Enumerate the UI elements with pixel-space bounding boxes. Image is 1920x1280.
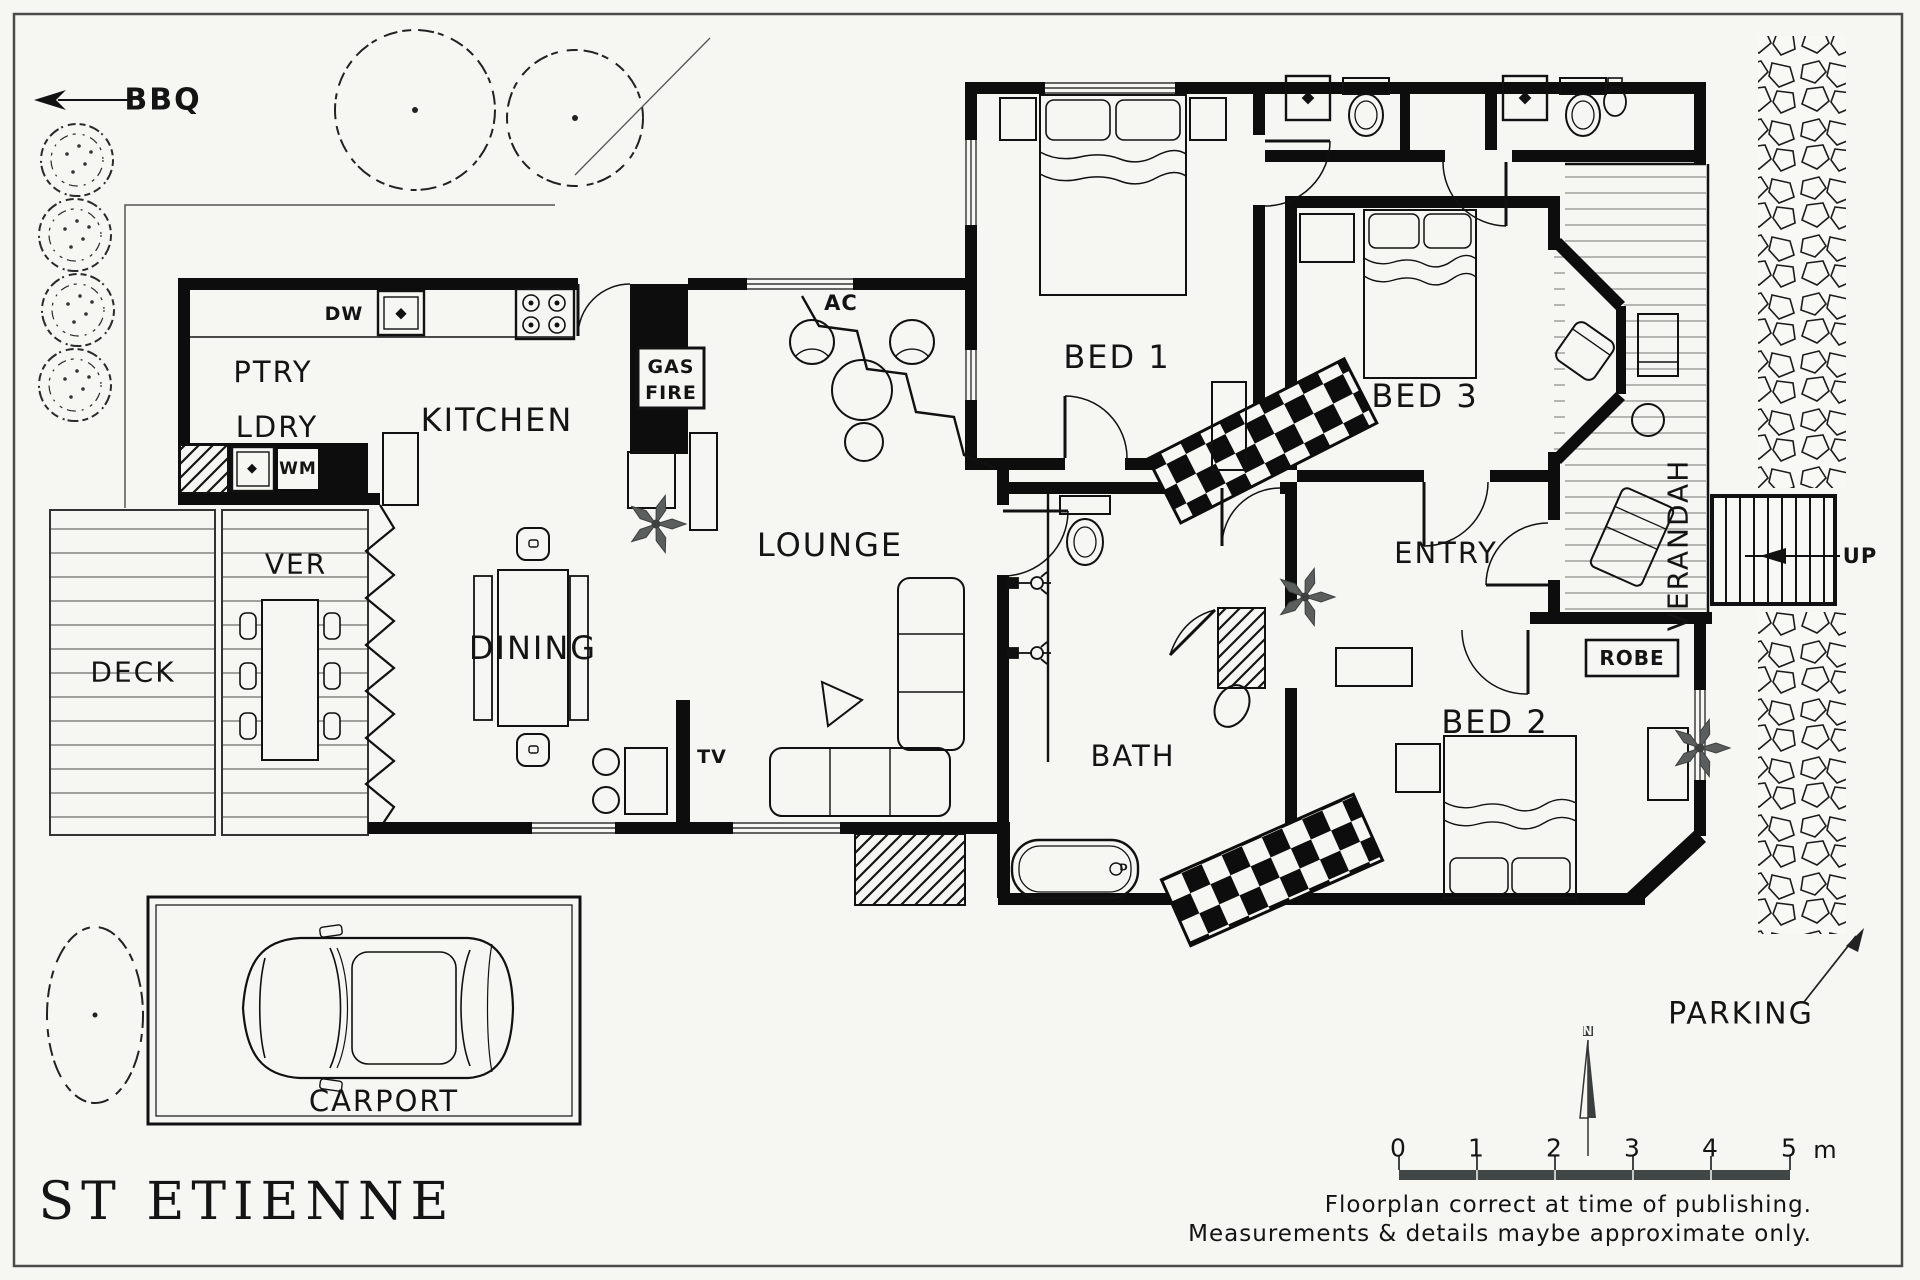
stairs	[1712, 496, 1840, 604]
room-label-bed3: BED 3	[1371, 377, 1478, 415]
bed2-furniture	[1336, 640, 1688, 898]
scale-tick-4: 4	[1702, 1134, 1720, 1163]
bush-icon	[39, 199, 111, 271]
bush-icon	[42, 274, 114, 346]
room-label-ldry: LDRY	[236, 410, 319, 444]
scale-tick-1: 1	[1468, 1134, 1486, 1163]
bush-icon	[41, 124, 113, 196]
rock-garden-strip	[1758, 36, 1846, 488]
parking-arrow-icon	[1804, 928, 1864, 1002]
scale-unit-label: m	[1813, 1136, 1838, 1164]
room-label-bed1: BED 1	[1063, 338, 1170, 376]
robe-label: ROBE	[1599, 646, 1664, 670]
rock-garden-strip	[1758, 612, 1846, 934]
lamp-icon	[822, 682, 862, 726]
room-label-bath: BATH	[1090, 739, 1175, 773]
island-bench	[383, 433, 418, 505]
fireplace-motifs	[855, 359, 1383, 946]
footer-line1: Floorplan correct at time of publishing.	[1325, 1192, 1812, 1218]
up-label: UP	[1843, 544, 1877, 568]
tub-drain-label: D	[1119, 863, 1128, 874]
toilet-icon	[1060, 496, 1110, 565]
ver-label: VER	[265, 548, 327, 581]
dw-label: DW	[325, 303, 364, 325]
north-arrow-icon	[1580, 1026, 1596, 1156]
bush-icon	[39, 349, 111, 421]
room-label-kitchen: KITCHEN	[421, 401, 574, 439]
sideboard	[690, 433, 717, 530]
scale-tick-3: 3	[1624, 1134, 1642, 1163]
car-icon	[243, 925, 513, 1092]
trough-icon	[232, 447, 274, 491]
floorplan-page: BBQ PTRY LDRY KITCHEN DW WM GAS FIRE AC …	[0, 0, 1920, 1280]
room-label-dining: DINING	[469, 629, 597, 667]
sink-icon	[378, 291, 424, 335]
bbq-arrow-icon	[34, 90, 128, 110]
room-label-lounge: LOUNGE	[757, 526, 903, 564]
tub-chair-icon	[890, 320, 934, 364]
bifold-doors	[366, 505, 394, 828]
carport-label: CARPORT	[309, 1084, 459, 1118]
porch-hatch	[855, 834, 965, 905]
property-title: ST ETIENNE	[39, 1172, 456, 1232]
doors	[578, 141, 1548, 694]
tub-chair-icon	[790, 320, 834, 364]
footer-line2: Measurements & details maybe approximate…	[1188, 1221, 1812, 1247]
outdoor-table	[240, 600, 340, 760]
compass-n-label: N	[1582, 1024, 1593, 1038]
plant-icon	[629, 494, 686, 554]
shower-rose-icon	[1008, 642, 1051, 664]
scale-tick-0: 0	[1390, 1134, 1408, 1163]
room-label-ptry: PTRY	[233, 355, 312, 389]
scale-tick-2: 2	[1546, 1134, 1564, 1163]
tv-cabinet	[625, 748, 667, 814]
wm-label: WM	[279, 459, 317, 479]
sofa	[770, 578, 964, 816]
verandah-label: VERANDAH	[1662, 459, 1695, 632]
floorplan-drawing	[0, 0, 1920, 1280]
flue-hatch	[1218, 608, 1265, 688]
scale-bar	[1399, 1156, 1790, 1180]
hearth	[628, 452, 675, 508]
tv-label: TV	[697, 746, 727, 768]
gas-label: GAS	[648, 356, 695, 378]
ac-label: AC	[824, 291, 858, 315]
stove-icon	[516, 289, 574, 339]
room-label-entry: ENTRY	[1394, 536, 1498, 570]
laundry-hatch	[180, 445, 228, 493]
bed1-furniture	[1000, 95, 1246, 470]
deck-label: DECK	[90, 656, 175, 689]
room-label-bed2: BED 2	[1441, 703, 1548, 741]
scale-tick-5: 5	[1781, 1134, 1799, 1163]
bath-fixtures	[1008, 494, 1256, 898]
bbq-label: BBQ	[124, 83, 201, 118]
fire-label: FIRE	[645, 382, 697, 404]
parking-label: PARKING	[1668, 997, 1814, 1032]
